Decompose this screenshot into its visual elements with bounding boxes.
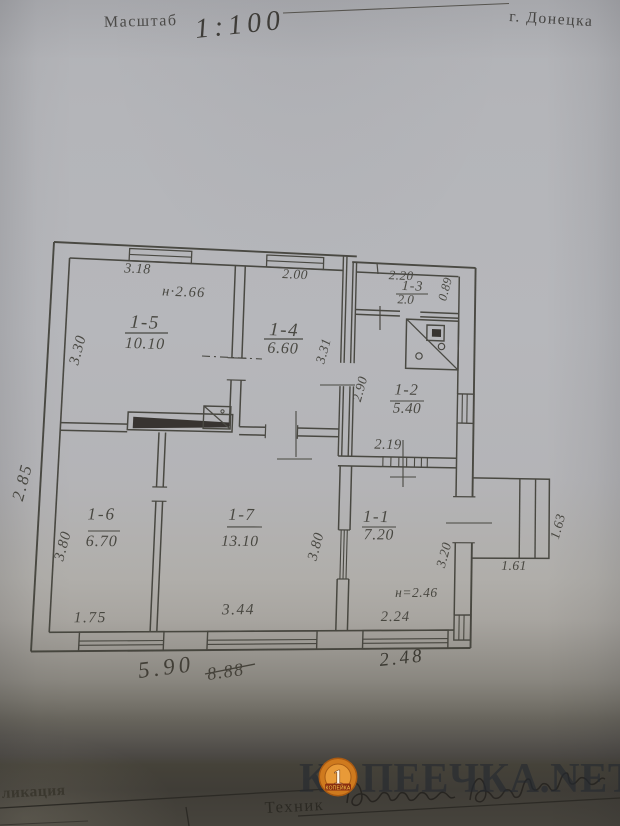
- svg-text:2.19: 2.19: [374, 437, 402, 454]
- svg-text:н·2.66: н·2.66: [162, 283, 206, 301]
- svg-text:1.75: 1.75: [74, 609, 107, 626]
- svg-text:10.10: 10.10: [125, 335, 166, 353]
- svg-text:1-4: 1-4: [269, 319, 300, 341]
- svg-text:13.10: 13.10: [221, 533, 258, 550]
- svg-text:2.90: 2.90: [349, 375, 370, 404]
- svg-text:Масштаб: Масштаб: [104, 12, 178, 31]
- svg-text:1-7: 1-7: [228, 505, 255, 524]
- svg-text:3.31: 3.31: [312, 337, 333, 367]
- svg-text:1-2: 1-2: [394, 381, 419, 399]
- svg-text:6.70: 6.70: [86, 533, 118, 550]
- svg-text:н=2.46: н=2.46: [395, 585, 437, 600]
- svg-text:8.88: 8.88: [206, 659, 246, 684]
- svg-text:2.00: 2.00: [282, 266, 308, 282]
- svg-text:7.20: 7.20: [364, 526, 394, 543]
- svg-text:Техник: Техник: [264, 795, 324, 817]
- svg-text:1.63: 1.63: [547, 512, 568, 541]
- svg-text:1: 1: [333, 765, 344, 789]
- svg-text:2.85: 2.85: [8, 461, 36, 502]
- svg-text:3.80: 3.80: [51, 529, 75, 563]
- svg-text:2.48: 2.48: [378, 645, 425, 671]
- svg-text:1-1: 1-1: [363, 507, 390, 526]
- svg-text:1-3: 1-3: [401, 279, 423, 295]
- svg-text:2.20: 2.20: [389, 267, 414, 283]
- svg-text:3.30: 3.30: [66, 333, 90, 367]
- svg-text:1-5: 1-5: [130, 312, 161, 334]
- svg-text:6.60: 6.60: [267, 340, 299, 358]
- svg-text:1:100: 1:100: [193, 5, 286, 45]
- svg-text:2.0: 2.0: [397, 291, 414, 307]
- svg-text:5.90: 5.90: [137, 651, 196, 683]
- svg-text:КОПЕЙКА: КОПЕЙКА: [326, 783, 351, 791]
- svg-text:3.18: 3.18: [123, 261, 151, 277]
- svg-text:г. Донецка: г. Донецка: [509, 8, 594, 30]
- svg-text:0.89: 0.89: [435, 275, 455, 302]
- svg-text:ликация: ликация: [1, 782, 66, 802]
- svg-text:2.24: 2.24: [381, 609, 410, 625]
- svg-text:1-6: 1-6: [87, 504, 116, 523]
- svg-text:КОПЕЕЧКА.NET: КОПЕЕЧКА.NET: [299, 754, 620, 801]
- svg-text:3.80: 3.80: [304, 531, 327, 564]
- svg-text:3.20: 3.20: [433, 541, 454, 571]
- svg-text:5.40: 5.40: [393, 401, 422, 418]
- svg-text:3.44: 3.44: [221, 601, 255, 618]
- svg-text:1.61: 1.61: [501, 558, 527, 573]
